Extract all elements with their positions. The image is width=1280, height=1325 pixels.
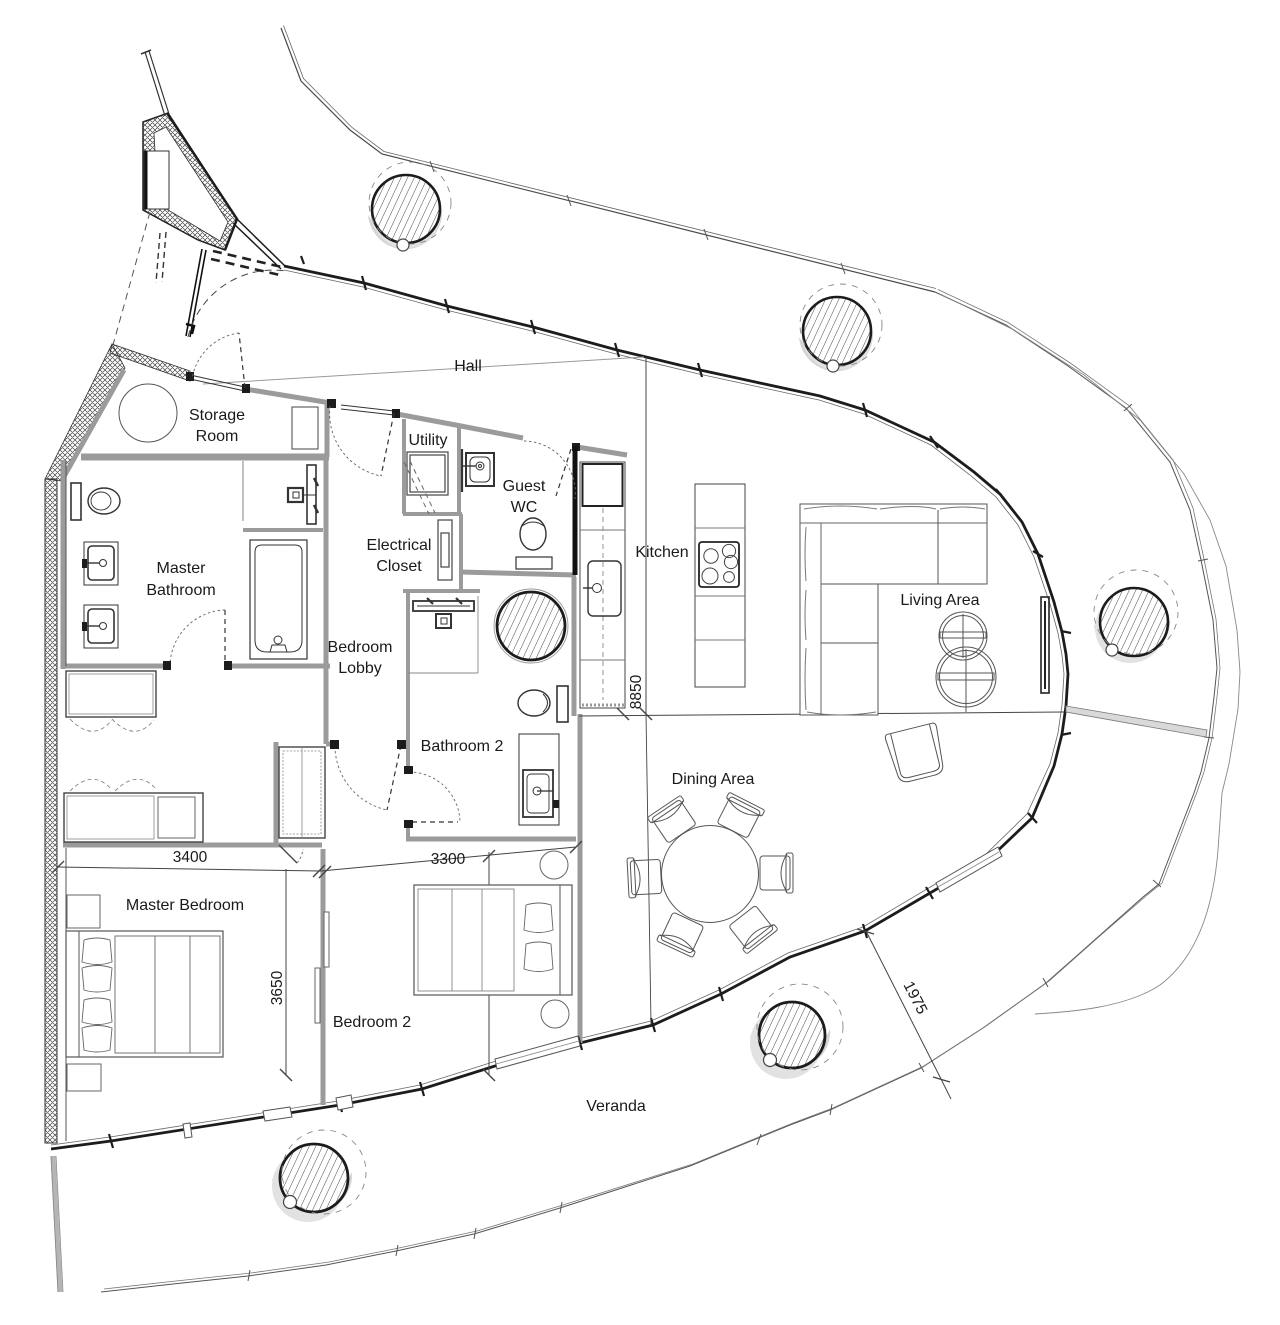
svg-text:Bathroom: Bathroom xyxy=(146,582,215,599)
svg-text:Hall: Hall xyxy=(454,358,482,375)
svg-text:Master: Master xyxy=(157,560,207,577)
svg-text:Bedroom 2: Bedroom 2 xyxy=(333,1014,411,1031)
svg-text:Master Bedroom: Master Bedroom xyxy=(126,897,244,914)
svg-text:3300: 3300 xyxy=(431,851,466,868)
svg-text:Electrical: Electrical xyxy=(367,537,432,554)
svg-text:Utility: Utility xyxy=(408,432,447,449)
svg-text:Room: Room xyxy=(196,428,239,445)
svg-text:Storage: Storage xyxy=(189,407,245,424)
svg-text:Veranda: Veranda xyxy=(586,1098,646,1115)
svg-text:WC: WC xyxy=(511,499,538,516)
svg-text:Lobby: Lobby xyxy=(338,660,382,677)
svg-text:Bathroom 2: Bathroom 2 xyxy=(421,738,504,755)
svg-text:Guest: Guest xyxy=(503,478,546,495)
svg-text:3650: 3650 xyxy=(269,970,286,1005)
svg-text:3400: 3400 xyxy=(173,849,208,866)
svg-text:Dining Area: Dining Area xyxy=(672,771,755,788)
svg-text:Living Area: Living Area xyxy=(900,592,979,609)
svg-text:Closet: Closet xyxy=(376,558,422,575)
svg-text:Kitchen: Kitchen xyxy=(635,544,688,561)
svg-text:8850: 8850 xyxy=(628,674,645,709)
svg-text:Bedroom: Bedroom xyxy=(328,639,393,656)
